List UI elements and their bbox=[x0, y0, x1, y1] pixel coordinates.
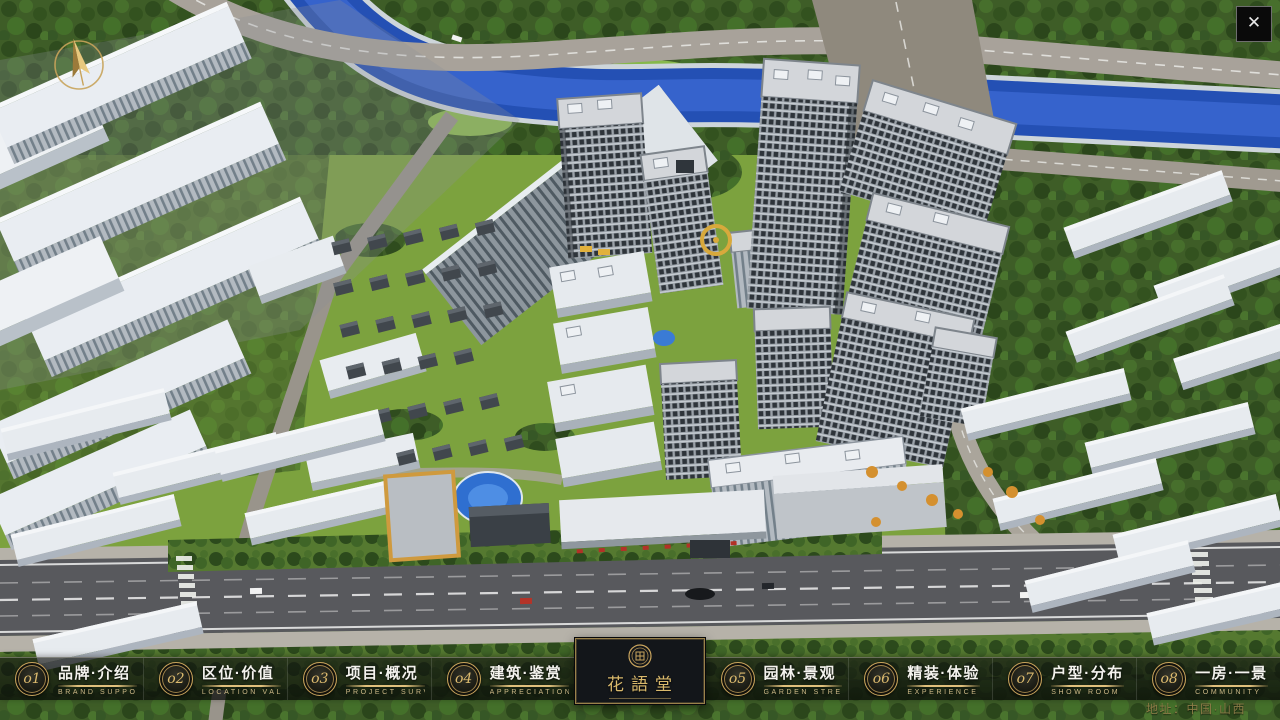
project-address: 地址：中国·山西 bbox=[1146, 700, 1246, 717]
nav-item-subtitle: APPRECIATION bbox=[490, 689, 569, 696]
nav-item-title: 区位·价值 bbox=[202, 662, 281, 683]
gold-underline bbox=[346, 685, 425, 687]
project-logo-title: 花語堂 bbox=[600, 670, 679, 695]
nav-item-number-badge: o4 bbox=[447, 662, 481, 696]
nav-item-subtitle: EXPERIENCE bbox=[907, 689, 980, 696]
nav-item-brand-intro[interactable]: o1 品牌·介绍 BRAND SUPPORT bbox=[0, 658, 143, 700]
nav-item-subtitle: SHOW ROOM bbox=[1051, 689, 1124, 696]
nav-item-architecture-appreciation[interactable]: o4 建筑·鉴赏 APPRECIATION bbox=[431, 658, 575, 700]
scene-3d-view[interactable] bbox=[0, 0, 1280, 720]
nav-item-title: 品牌·介绍 bbox=[58, 662, 137, 683]
gold-underline bbox=[58, 685, 137, 687]
close-button[interactable]: ✕ bbox=[1236, 6, 1272, 42]
nav-item-one-room-one-view[interactable]: o8 一房·一景 COMMUNITY bbox=[1136, 658, 1280, 700]
gold-underline bbox=[907, 685, 980, 687]
gold-underline bbox=[490, 685, 569, 687]
seal-icon bbox=[627, 643, 653, 669]
nav-item-number-badge: o2 bbox=[159, 662, 193, 696]
nav-item-subtitle: PROJECT SURVEY bbox=[346, 689, 425, 696]
app-window: ✕ o1 品牌·介绍 BRAND SUPPORT o2 区位·价值 LOCATI… bbox=[0, 0, 1280, 720]
nav-item-subtitle: LOCATION VALUE bbox=[202, 689, 281, 696]
nav-item-subtitle: BRAND SUPPORT bbox=[58, 689, 137, 696]
nav-item-title: 精装·体验 bbox=[907, 662, 980, 683]
nav-item-title: 一房·一景 bbox=[1195, 662, 1268, 683]
gold-underline bbox=[1195, 685, 1268, 687]
nav-item-title: 户型·分布 bbox=[1051, 662, 1124, 683]
nav-item-title: 园林·景观 bbox=[764, 662, 843, 683]
gold-underline bbox=[764, 685, 843, 687]
nav-item-number-badge: o3 bbox=[303, 662, 337, 696]
nav-item-title: 建筑·鉴赏 bbox=[490, 662, 569, 683]
nav-item-number-badge: o1 bbox=[15, 662, 49, 696]
nav-item-garden-landscape[interactable]: o5 园林·景观 GARDEN STREET bbox=[705, 658, 849, 700]
nav-item-location-value[interactable]: o2 区位·价值 LOCATION VALUE bbox=[143, 658, 287, 700]
bottom-nav-bar: o1 品牌·介绍 BRAND SUPPORT o2 区位·价值 LOCATION… bbox=[0, 657, 1280, 700]
nav-item-subtitle: COMMUNITY bbox=[1195, 689, 1268, 696]
nav-item-title: 项目·概况 bbox=[346, 662, 425, 683]
gold-underline bbox=[1051, 685, 1124, 687]
nav-item-subtitle: GARDEN STREET bbox=[764, 689, 843, 696]
nav-item-floorplan-distribution[interactable]: o7 户型·分布 SHOW ROOM bbox=[992, 658, 1136, 700]
nav-item-interior-experience[interactable]: o6 精装·体验 EXPERIENCE bbox=[848, 658, 992, 700]
nav-item-number-badge: o8 bbox=[1152, 662, 1186, 696]
logo-subtext-line bbox=[609, 698, 671, 699]
nav-item-number-badge: o7 bbox=[1008, 662, 1042, 696]
nav-item-number-badge: o5 bbox=[721, 662, 755, 696]
project-logo-panel[interactable]: 花語堂 bbox=[575, 638, 705, 704]
gold-underline bbox=[202, 685, 281, 687]
nav-item-project-overview[interactable]: o3 项目·概况 PROJECT SURVEY bbox=[287, 658, 431, 700]
nav-item-number-badge: o6 bbox=[864, 662, 898, 696]
